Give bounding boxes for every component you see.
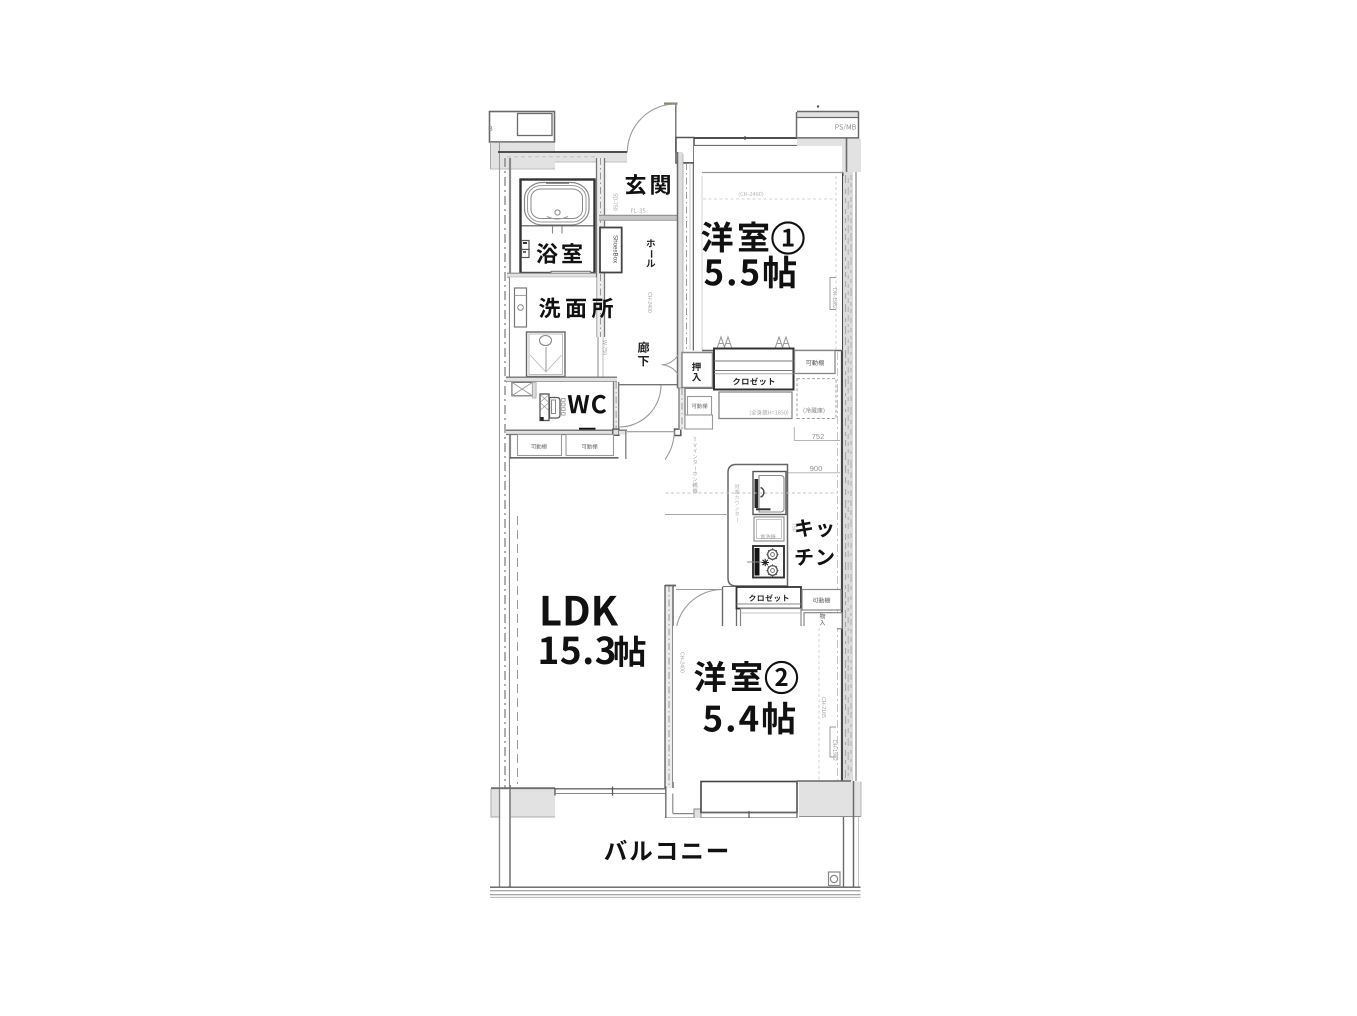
svg-text:752: 752 bbox=[812, 432, 825, 441]
svg-text:DH-1982: DH-1982 bbox=[831, 740, 837, 761]
svg-text:W-750: W-750 bbox=[601, 340, 607, 355]
svg-text:ShoesBox: ShoesBox bbox=[612, 235, 619, 264]
svg-text:DH-1982: DH-1982 bbox=[831, 288, 837, 309]
svg-text:CH-2400: CH-2400 bbox=[646, 292, 652, 313]
svg-text:B: B bbox=[488, 126, 493, 133]
svg-text:SD-750: SD-750 bbox=[612, 193, 618, 211]
svg-text:750: 750 bbox=[791, 523, 797, 532]
svg-text:900: 900 bbox=[810, 464, 823, 473]
svg-text:CH-2165: CH-2165 bbox=[820, 697, 826, 718]
svg-text:CH-2400: CH-2400 bbox=[679, 652, 685, 673]
